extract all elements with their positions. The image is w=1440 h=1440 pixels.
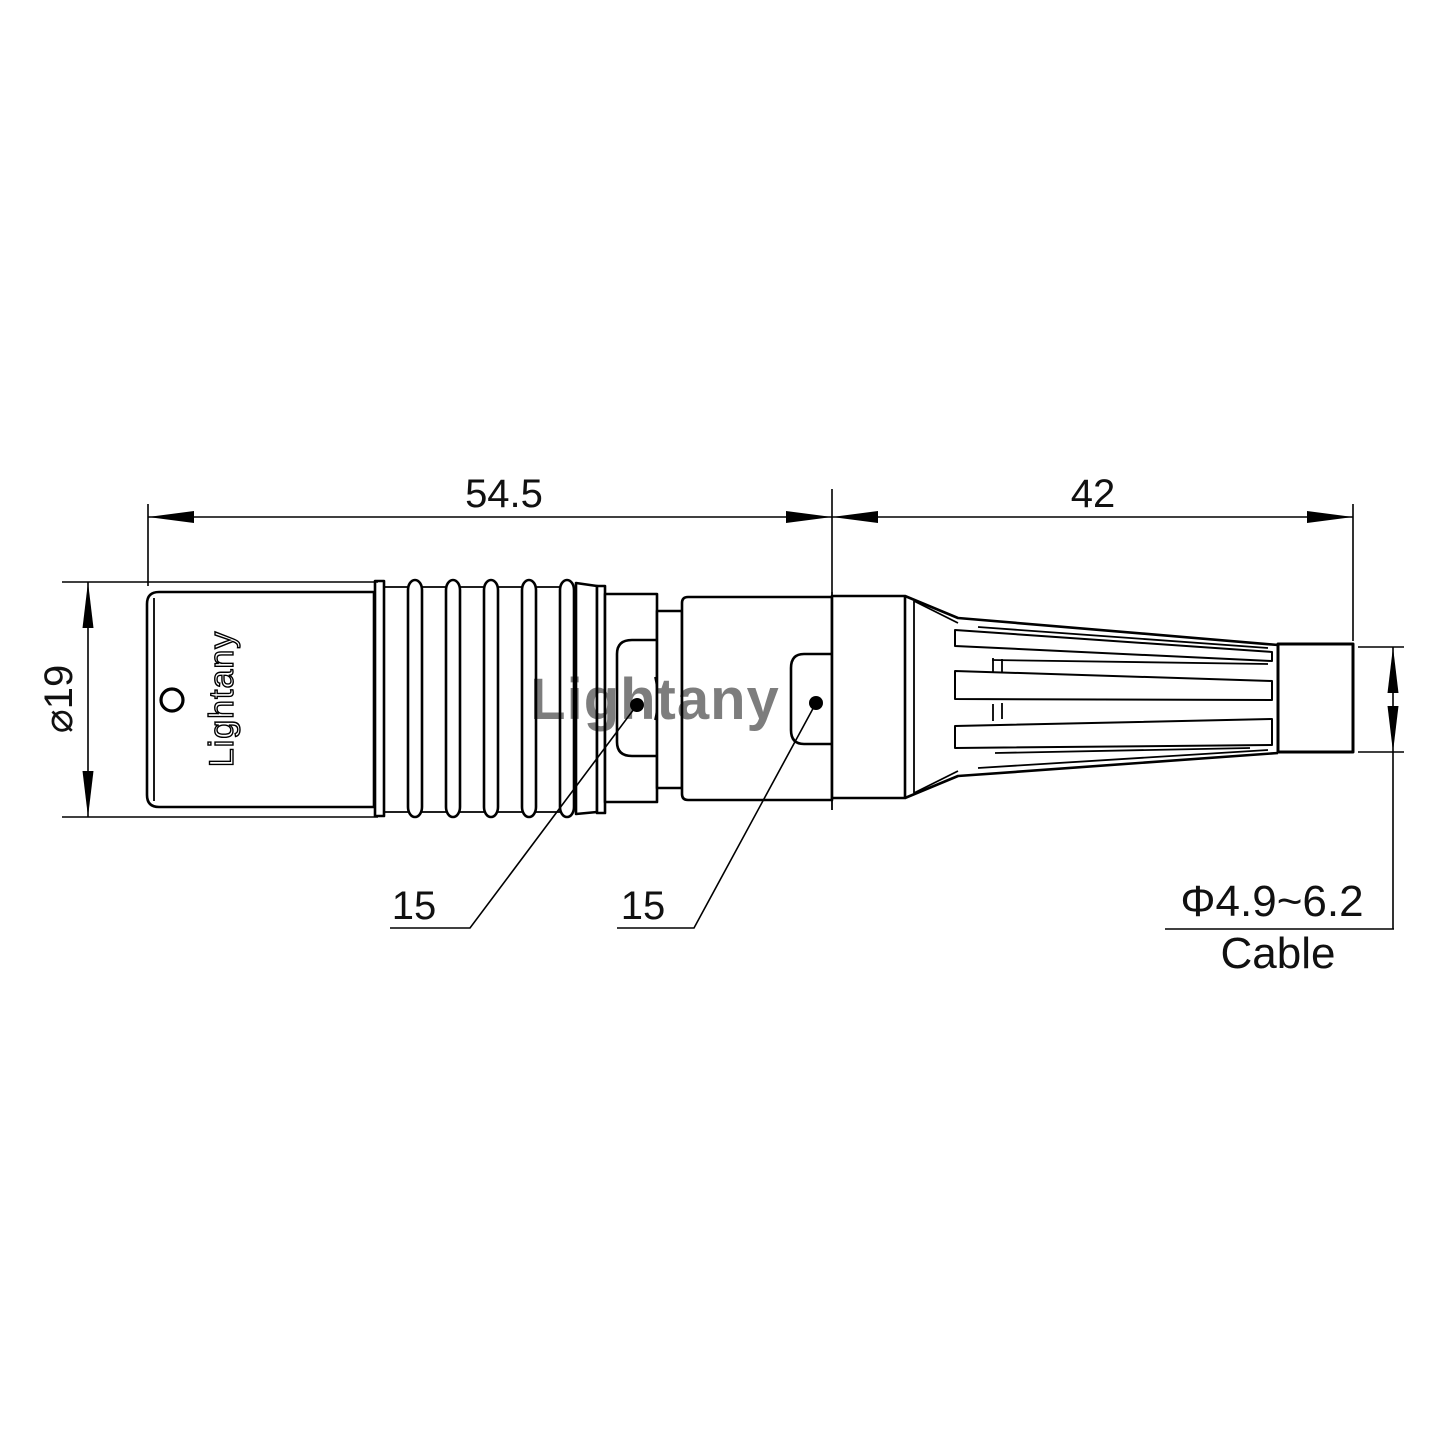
rib xyxy=(408,580,422,817)
body-engraving-text: Lightany xyxy=(203,631,241,768)
boot-fin-lower xyxy=(955,719,1272,748)
cable-word-label: Cable xyxy=(1221,929,1336,978)
dim-front-length-label: 54.5 xyxy=(465,472,543,516)
dim-diameter-label: ⌀19 xyxy=(37,665,81,734)
leader-rear-latch-label: 15 xyxy=(621,884,666,928)
technical-drawing-canvas: Lightany xyxy=(0,0,1440,1440)
leader-front-latch-label: 15 xyxy=(392,884,437,928)
rib xyxy=(484,580,498,817)
cable-sleeve xyxy=(1278,644,1353,752)
boot-nut-section xyxy=(832,592,905,810)
cable-diameter-label: Φ4.9~6.2 xyxy=(1180,877,1363,926)
strain-relief-boot xyxy=(905,596,1278,798)
dim-rear-length-label: 42 xyxy=(1071,472,1116,516)
boot-fin-middle xyxy=(955,671,1272,700)
connector-drawing: Lightany xyxy=(0,0,1440,1440)
rib xyxy=(446,580,460,817)
watermark-text: Lightany xyxy=(530,667,780,732)
connector-main-body: Lightany xyxy=(147,592,374,807)
